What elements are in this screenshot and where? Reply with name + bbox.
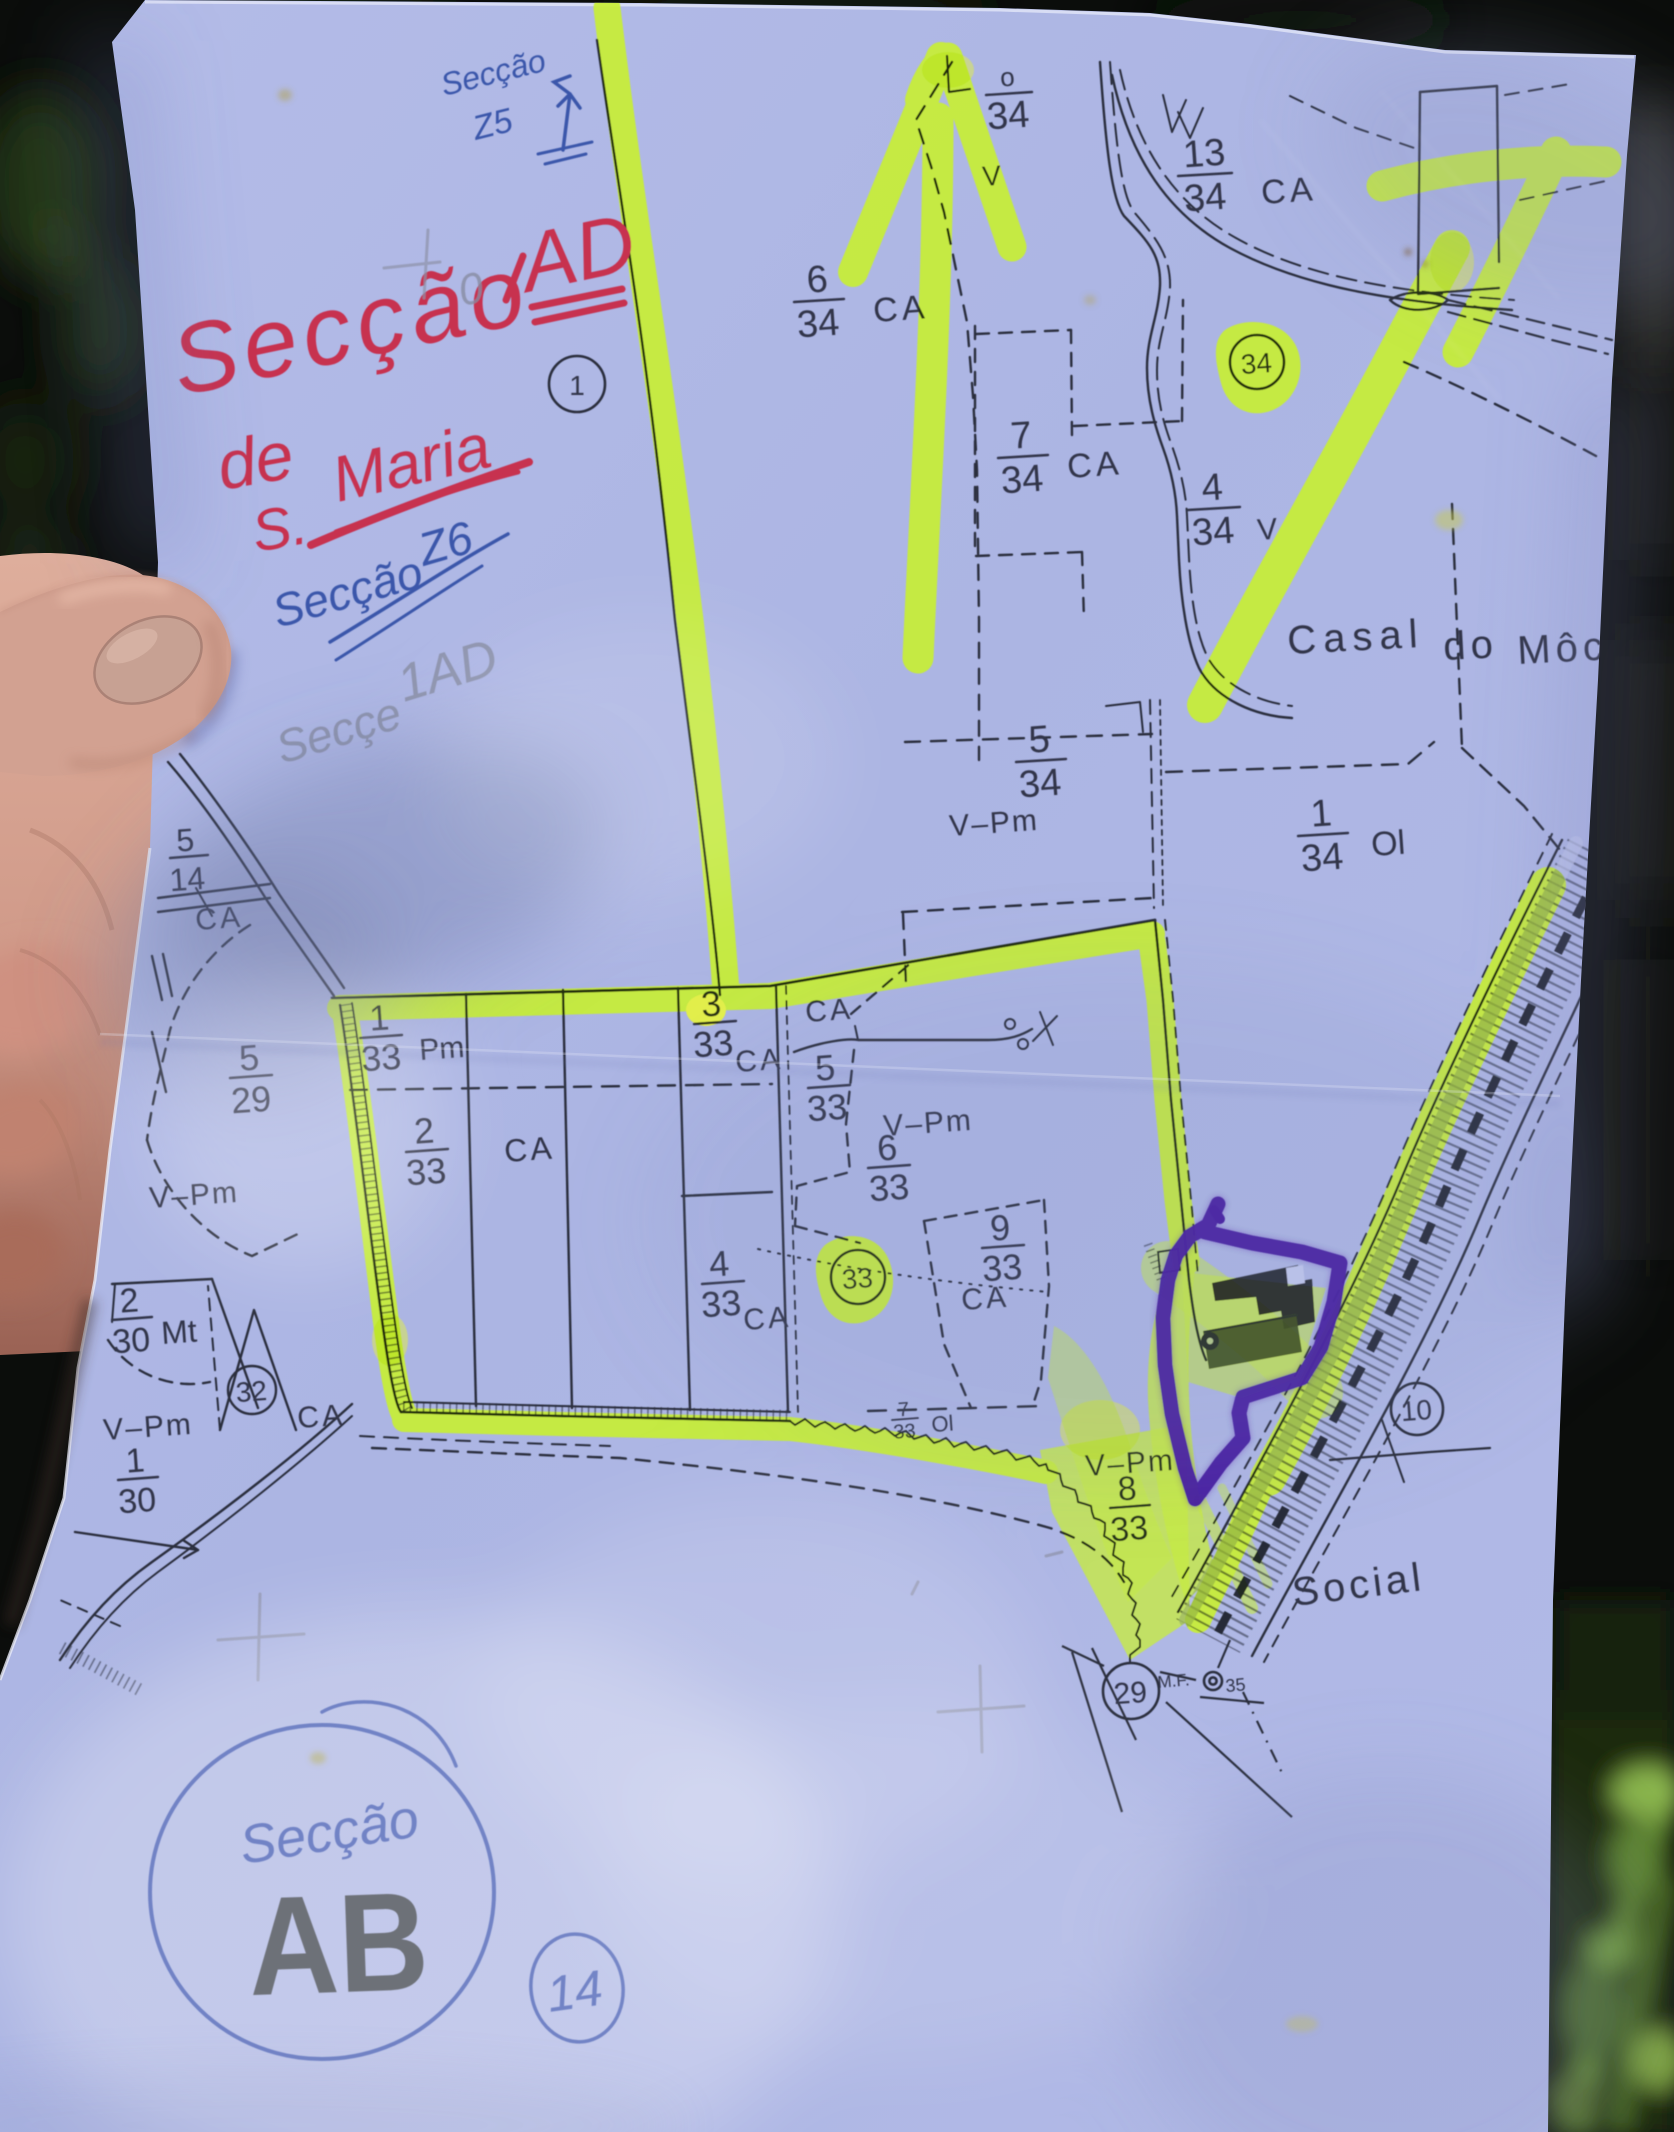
svg-text:29: 29 — [1113, 1676, 1149, 1711]
svg-text:2: 2 — [118, 1281, 140, 1320]
svg-text:35: 35 — [1225, 1674, 1247, 1696]
svg-text:34: 34 — [986, 94, 1031, 139]
svg-text:34: 34 — [1300, 836, 1345, 881]
svg-text:Ol: Ol — [1370, 824, 1407, 864]
svg-text:M.F.: M.F. — [1157, 1670, 1191, 1692]
svg-text:de: de — [211, 417, 299, 505]
svg-text:Mt: Mt — [160, 1313, 198, 1351]
svg-text:V–Pm: V–Pm — [948, 804, 1040, 843]
svg-text:34: 34 — [1183, 176, 1228, 221]
svg-text:1: 1 — [569, 370, 585, 401]
svg-text:34: 34 — [796, 302, 841, 347]
svg-text:6: 6 — [805, 258, 829, 301]
svg-text:Casal: Casal — [1286, 612, 1425, 663]
svg-text:7: 7 — [1009, 414, 1033, 457]
svg-text:CA: CA — [1066, 444, 1124, 486]
svg-text:do: do — [1442, 622, 1499, 669]
svg-text:34: 34 — [1000, 458, 1045, 503]
svg-text:30: 30 — [111, 1321, 151, 1362]
svg-text:13: 13 — [1182, 132, 1227, 177]
svg-text:32: 32 — [235, 1375, 268, 1408]
svg-text:CA: CA — [296, 1399, 346, 1435]
svg-text:34: 34 — [1018, 762, 1063, 807]
svg-text:34: 34 — [1191, 510, 1236, 555]
svg-text:5: 5 — [1027, 718, 1051, 761]
svg-text:o: o — [999, 62, 1016, 93]
svg-text:30: 30 — [117, 1481, 157, 1522]
svg-text:S.: S. — [247, 491, 312, 565]
svg-text:4: 4 — [1200, 466, 1224, 509]
svg-text:1: 1 — [1309, 792, 1333, 835]
svg-text:CA: CA — [503, 1130, 556, 1169]
svg-text:1: 1 — [124, 1441, 146, 1480]
svg-text:V–Pm: V–Pm — [102, 1408, 194, 1447]
